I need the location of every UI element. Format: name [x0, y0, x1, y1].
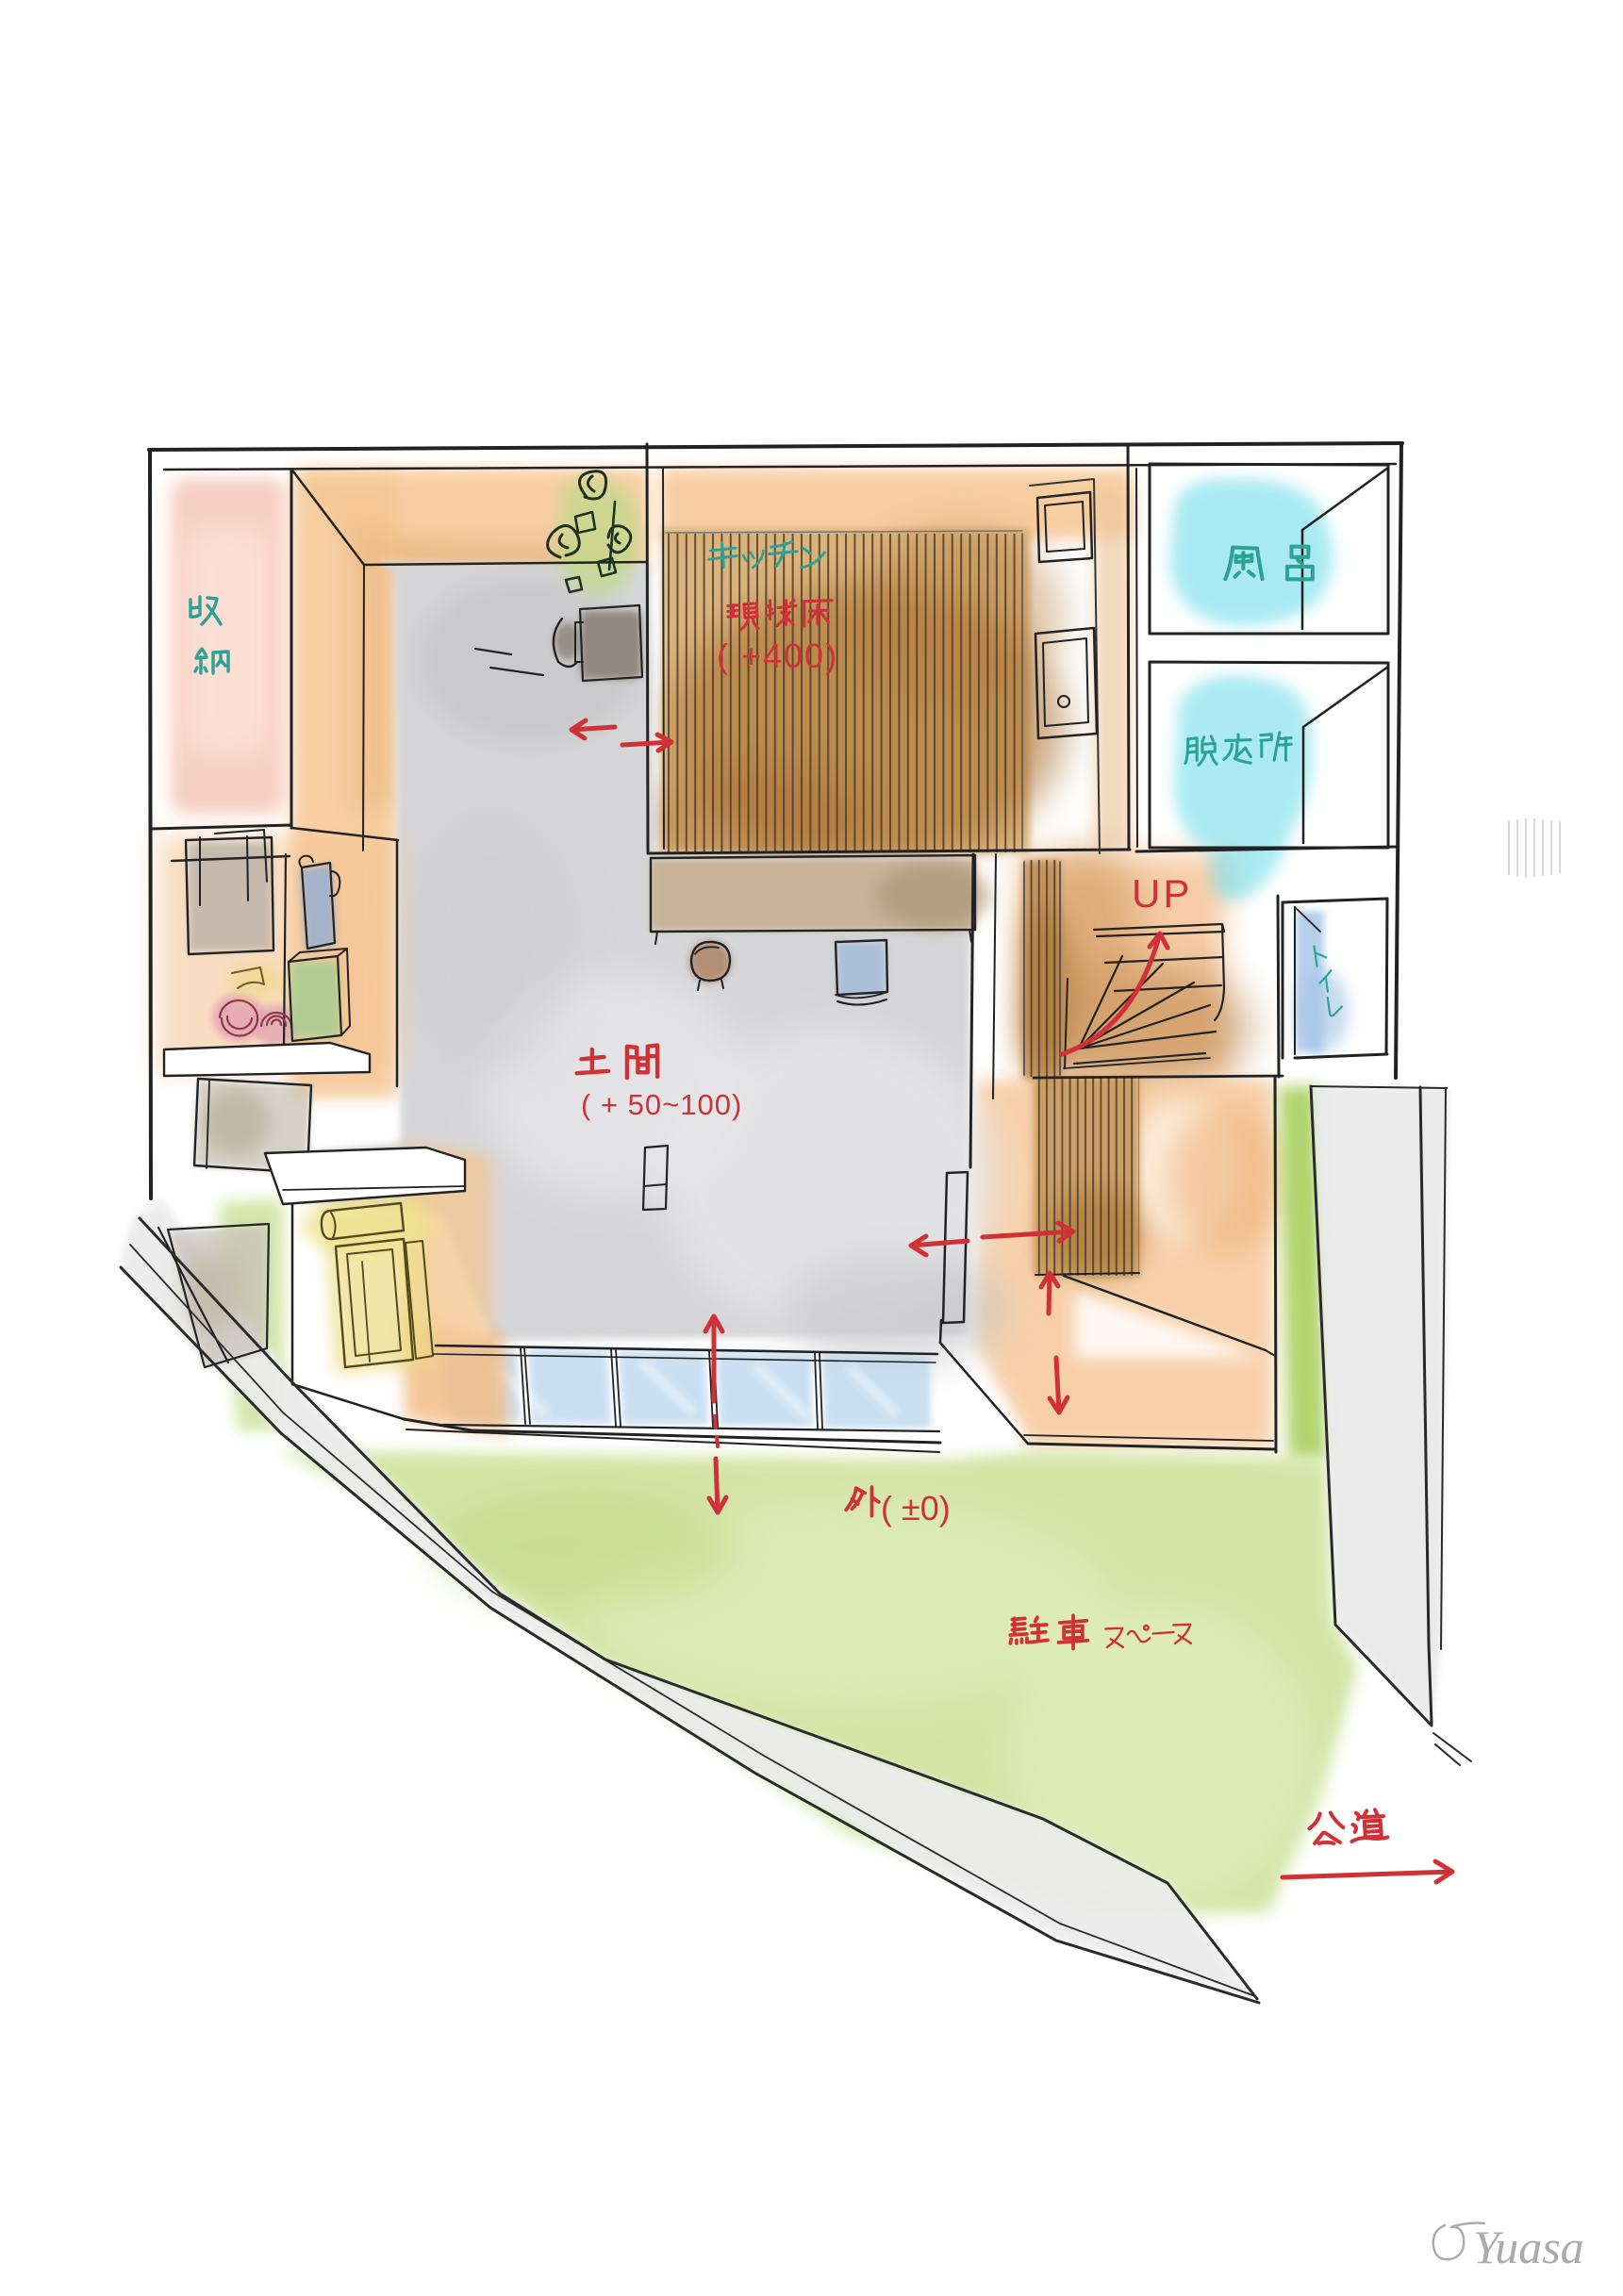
svg-text:( +400): ( +400) [717, 636, 838, 675]
svg-text:( ±0): ( ±0) [881, 1489, 951, 1528]
svg-text:UP: UP [1132, 871, 1192, 916]
svg-text:( + 50~100): ( + 50~100) [581, 1088, 742, 1121]
svg-text:Yuasa: Yuasa [1473, 2221, 1584, 2273]
